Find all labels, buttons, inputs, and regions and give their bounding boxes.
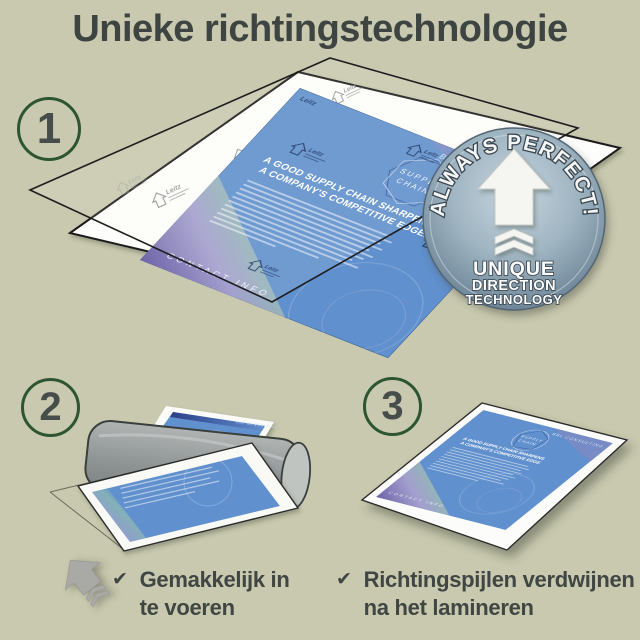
- caption-line: te voeren: [140, 594, 290, 622]
- step-number-label: 1: [37, 104, 61, 154]
- badge-line-unique: UNIQUE: [473, 258, 555, 280]
- product-infographic: Leitz Leitz BBL CONSUL: [0, 0, 640, 640]
- step-number-label: 2: [39, 385, 61, 430]
- step-number-3: 3: [363, 377, 422, 436]
- step-number-2: 2: [21, 378, 80, 437]
- caption-arrows-disappear: ✔ Richtingspijlen verdwijnen na het lami…: [336, 566, 635, 622]
- caption-line: Richtingspijlen verdwijnen: [364, 566, 635, 594]
- page-title: Unieke richtingstechnologie: [0, 8, 640, 51]
- caption-line: na het lamineren: [364, 594, 635, 622]
- checkmark-icon: ✔: [336, 566, 352, 622]
- badge-line-technology: TECHNOLOGY: [466, 292, 563, 307]
- caption-easy-feed: ✔ Gemakkelijk in te voeren: [112, 566, 290, 622]
- step-number-1: 1: [17, 97, 81, 161]
- step-number-label: 3: [381, 384, 403, 429]
- always-perfect-badge: ALWAYS PERFECT! UNIQUE DIRECTION TECHNOL…: [423, 128, 605, 310]
- direction-arrow-icon: [53, 547, 119, 614]
- checkmark-icon: ✔: [112, 566, 128, 622]
- caption-line: Gemakkelijk in: [140, 566, 290, 594]
- illustration-canvas: Leitz Leitz BBL CONSUL: [0, 0, 640, 640]
